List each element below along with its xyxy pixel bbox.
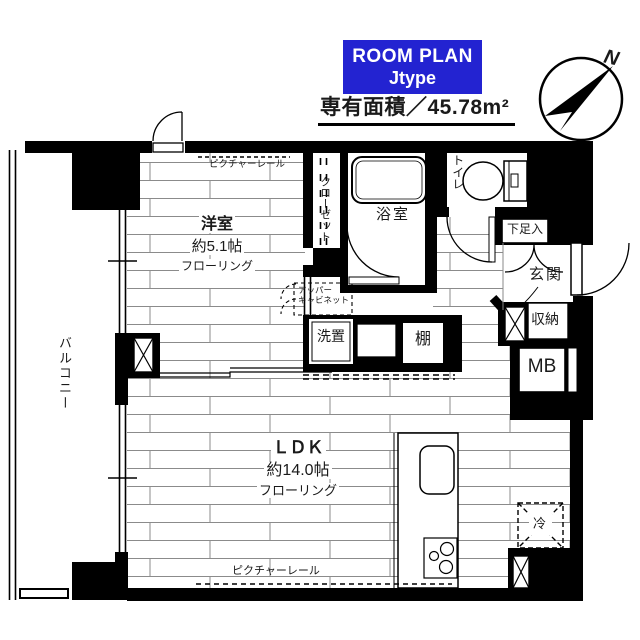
kitchen-counter bbox=[394, 433, 458, 588]
storage-label: 収納 bbox=[531, 311, 559, 327]
western-room-label: 洋室 約5.1帖 フローリング bbox=[158, 216, 276, 273]
balcony-label: バルコニー bbox=[56, 336, 71, 411]
toilet-icon bbox=[463, 161, 527, 201]
picture-rail-label-top: ピクチャーレール bbox=[202, 160, 292, 171]
stove-icon bbox=[424, 538, 457, 578]
upper-cabinet-label: アッパー キャビネット bbox=[298, 285, 349, 305]
entrance-label: 玄関 bbox=[529, 266, 563, 283]
plan-type: Jtype bbox=[389, 68, 436, 89]
shelf-label: 棚 bbox=[406, 331, 440, 349]
picture-rail-label-bottom: ピクチャーレール bbox=[226, 565, 326, 578]
shoe-box-label: 下足入 bbox=[502, 223, 548, 237]
bath-label: 浴室 bbox=[376, 206, 410, 223]
entrance-door-swing bbox=[571, 243, 629, 295]
bathtub-icon bbox=[352, 157, 426, 203]
meter-box-label: MB bbox=[519, 356, 565, 378]
bath-door-swing bbox=[347, 225, 399, 277]
balcony-partition bbox=[20, 589, 68, 598]
toilet-label: トイレ bbox=[450, 154, 464, 190]
compass-icon bbox=[540, 58, 622, 140]
closet-label: クローゼット bbox=[318, 176, 331, 242]
exclusive-area-text: 専有面積／45.78m² bbox=[318, 96, 515, 126]
floor-plan-page: ROOM PLAN Jtype 専有面積／45.78m² N 洋室 約5.1帖 … bbox=[0, 0, 640, 640]
plan-title-badge: ROOM PLAN Jtype bbox=[343, 40, 482, 94]
fridge-label: 冷 bbox=[533, 517, 546, 532]
bath-door-leaf bbox=[349, 277, 399, 284]
laundry-label: 洗置 bbox=[313, 328, 349, 344]
sink-icon bbox=[420, 446, 454, 494]
plan-title: ROOM PLAN bbox=[352, 46, 473, 68]
top-door-swing bbox=[153, 112, 183, 152]
ldk-label: ＬＤＫ 約14.0帖 フローリング bbox=[238, 438, 358, 499]
